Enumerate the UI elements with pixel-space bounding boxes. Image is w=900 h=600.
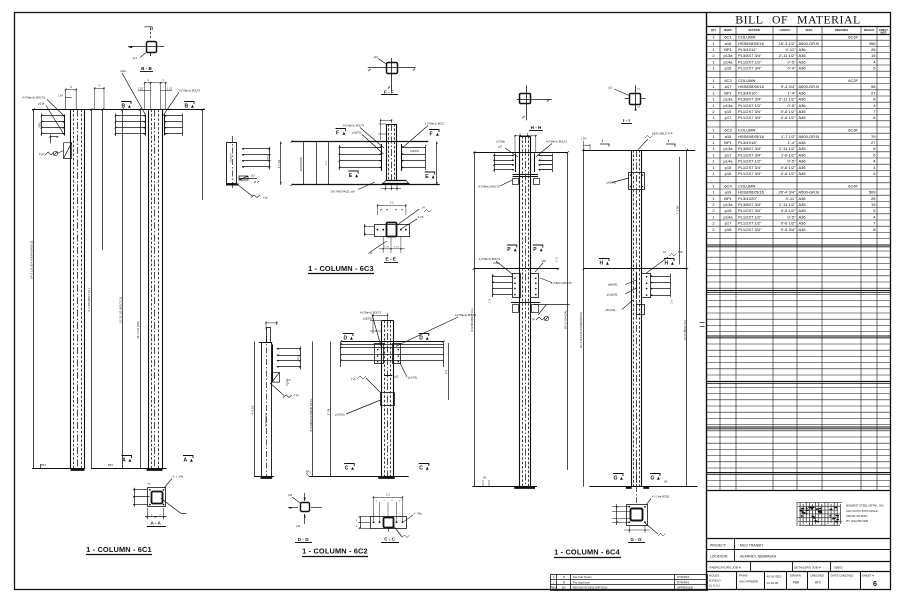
svg-text:6C1: 6C1 <box>724 35 732 40</box>
svg-text:1 1/2: 1 1/2 <box>167 87 173 90</box>
svg-text:QTY: QTY <box>711 28 717 32</box>
svg-text:8-(7/8ø×1) BOLTS: 8-(7/8ø×1) BOLTS <box>479 185 500 189</box>
svg-text:BP1: BP1 <box>306 471 311 474</box>
svg-text:p16: p16 <box>374 56 379 59</box>
svg-text:p13a: p13a <box>724 146 734 151</box>
svg-text:Per Approval: Per Approval <box>573 580 590 584</box>
svg-text:4-(7/8ø×1) BOLTS: 4-(7/8ø×1) BOLTS <box>343 124 364 128</box>
svg-text:HSS8X8: HSS8X8 <box>231 153 233 162</box>
svg-text:a19: a19 <box>725 190 732 195</box>
svg-text:6C3F: 6C3F <box>848 128 858 133</box>
svg-text:MCG TRANSIT: MCG TRANSIT <box>740 544 763 548</box>
svg-text:D - D: D - D <box>298 537 309 542</box>
svg-text:R: R <box>563 575 565 579</box>
svg-text:A36: A36 <box>799 152 807 157</box>
svg-text:PL1/2X7 3/4": PL1/2X7 3/4" <box>738 171 762 176</box>
svg-text:p14a: p14a <box>724 159 734 164</box>
svg-text:p18: p18 <box>725 227 732 232</box>
svg-text:PL1/2X7 3/4": PL1/2X7 3/4" <box>738 152 762 157</box>
svg-text:3@3: 3@3 <box>268 155 270 160</box>
svg-text:WEIGHT: WEIGHT <box>864 28 875 32</box>
svg-text:1'-4": 1'-4" <box>788 90 797 95</box>
svg-text:A36: A36 <box>799 146 807 151</box>
svg-text:26: 26 <box>871 47 876 52</box>
svg-text:PL3/8X7 3/4": PL3/8X7 3/4" <box>738 97 762 102</box>
svg-text:A36: A36 <box>799 221 807 226</box>
svg-text:6: 6 <box>873 581 877 588</box>
svg-text:C: C <box>345 466 349 472</box>
svg-text:1 - COLUMN - 6C3: 1 - COLUMN - 6C3 <box>308 264 374 273</box>
svg-text:E - E: E - E <box>386 257 396 262</box>
svg-text:DETAILERS JOB #: DETAILERS JOB # <box>794 566 821 570</box>
svg-text:15: 15 <box>871 53 876 58</box>
svg-text:A36: A36 <box>799 109 807 114</box>
svg-text:0'-6 3/4": 0'-6 3/4" <box>781 227 796 232</box>
svg-text:LENGTH: LENGTH <box>780 28 791 32</box>
svg-text:4-1 1/4ø RODS: 4-1 1/4ø RODS <box>652 496 670 499</box>
svg-text:79: 79 <box>871 134 876 139</box>
svg-text:p13a: p13a <box>724 53 734 58</box>
svg-text:DATE CHECKED: DATE CHECKED <box>831 574 853 578</box>
svg-text:(OA HSS8X8): (OA HSS8X8) <box>300 157 303 171</box>
svg-text:HOLES:: HOLES: <box>709 574 720 578</box>
svg-text:CHECKED: CHECKED <box>810 574 824 578</box>
svg-text:PBA: PBA <box>793 581 800 585</box>
svg-text:1'-7 1/2": 1'-7 1/2" <box>781 134 796 139</box>
svg-text:0'-6 1/2": 0'-6 1/2" <box>781 115 796 120</box>
svg-text:p17(NS): p17(NS) <box>335 413 345 417</box>
svg-text:16'-3 1/2": 16'-3 1/2" <box>779 41 796 46</box>
svg-text:ATC: ATC <box>815 581 822 585</box>
svg-text:00903: 00903 <box>834 566 843 570</box>
svg-text:1 - COLUMN - 6C1: 1 - COLUMN - 6C1 <box>86 545 152 554</box>
svg-text:p15: p15 <box>725 66 732 71</box>
svg-text:A36: A36 <box>799 171 807 176</box>
svg-text:B: B <box>185 104 189 110</box>
svg-text:1'-0: 1'-0 <box>671 299 674 304</box>
svg-text:FABRICATORS JOB #: FABRICATORS JOB # <box>710 566 741 570</box>
svg-text:HSS8X8X5/16: HSS8X8X5/16 <box>738 84 765 89</box>
svg-text:A500-GR.B: A500-GR.B <box>799 190 820 195</box>
svg-text:COLUMN: COLUMN <box>738 183 755 188</box>
svg-text:4-7/8: 4-7/8 <box>418 216 424 219</box>
svg-text:MARK: MARK <box>724 28 732 32</box>
svg-text:p14a: p14a <box>724 103 734 108</box>
svg-text:2'-11 1/2": 2'-11 1/2" <box>779 97 796 102</box>
svg-text:PL1/2X7 1/2": PL1/2X7 1/2" <box>738 214 762 219</box>
svg-text:p14: p14 <box>296 525 301 528</box>
svg-text:p17: p17 <box>498 146 503 149</box>
svg-text:26: 26 <box>871 196 876 201</box>
svg-text:1 - COLUMN - 6C2: 1 - COLUMN - 6C2 <box>302 547 368 556</box>
svg-text:A36: A36 <box>799 115 807 120</box>
svg-text:TYP: TYP <box>351 379 356 382</box>
svg-text:p66(FS): p66(FS) <box>607 181 617 185</box>
svg-text:0'-5": 0'-5" <box>788 214 797 219</box>
svg-text:p15: p15 <box>725 165 732 170</box>
svg-text:a16: a16 <box>725 41 732 46</box>
svg-text:A36: A36 <box>799 47 807 52</box>
svg-text:14'-3 1/2 (OA): 14'-3 1/2 (OA) <box>136 321 140 339</box>
svg-text:A500-GR.B: A500-GR.B <box>799 84 820 89</box>
svg-text:PL1/2X7 1/2": PL1/2X7 1/2" <box>738 103 762 108</box>
svg-text:R: R <box>563 580 565 584</box>
svg-text:B: B <box>122 104 126 110</box>
svg-text:PAINT:: PAINT: <box>739 574 748 578</box>
svg-text:p13a: p13a <box>120 69 126 73</box>
svg-text:0'-5": 0'-5" <box>788 159 797 164</box>
svg-text:PL3/4X16": PL3/4X16" <box>738 140 758 145</box>
svg-text:BP1: BP1 <box>724 196 732 201</box>
svg-text:A36: A36 <box>799 53 807 58</box>
svg-text:Per Fab Notes: Per Fab Notes <box>573 575 592 579</box>
svg-text:BP1: BP1 <box>41 463 46 467</box>
svg-text:BILL OF MATERIAL: BILL OF MATERIAL <box>735 12 860 26</box>
svg-text:PL1/2X7 3/4": PL1/2X7 3/4" <box>738 208 762 213</box>
svg-text:4-(7/8ø×1) BOLTS: 4-(7/8ø×1) BOLTS <box>479 257 500 261</box>
svg-text:p14a: p14a <box>724 214 734 219</box>
svg-text:19'-11 7/8 (OA): 19'-11 7/8 (OA) <box>564 311 568 330</box>
svg-text:HSS8X8X5/16: HSS8X8X5/16 <box>738 190 765 195</box>
svg-text:SPEC: SPEC <box>805 28 812 32</box>
svg-text:PL1/2X7 3/4": PL1/2X7 3/4" <box>738 165 762 170</box>
svg-text:H - H: H - H <box>531 125 542 130</box>
svg-text:BP1: BP1 <box>724 47 732 52</box>
svg-text:DTR/RF2: DTR/RF2 <box>677 575 690 579</box>
svg-text:PL3/4X20": PL3/4X20" <box>738 196 758 201</box>
svg-text:27: 27 <box>871 90 876 95</box>
svg-text:p13(FS): p13(FS) <box>352 131 362 135</box>
svg-text:I - I: I - I <box>623 118 630 123</box>
svg-text:6C2: 6C2 <box>724 78 732 83</box>
svg-text:1'-2: 1'-2 <box>386 494 391 497</box>
svg-text:7'-1 1/4: 7'-1 1/4 <box>676 205 679 214</box>
svg-text:4-(7/8ø×1) BOLTS: 4-(7/8ø×1) BOLTS <box>22 96 45 100</box>
svg-text:A36: A36 <box>799 97 807 102</box>
svg-text:PL1/2X7 3/4": PL1/2X7 3/4" <box>738 109 762 114</box>
svg-text:6C4: 6C4 <box>724 183 732 188</box>
svg-text:PL1/2X7 1/2": PL1/2X7 1/2" <box>738 159 762 164</box>
svg-text:A: A <box>184 458 188 464</box>
svg-text:1'-0: 1'-0 <box>489 298 492 303</box>
svg-text:p13a: p13a <box>493 262 499 265</box>
svg-text:C - C: C - C <box>384 537 395 542</box>
svg-text:PL1/2X7 3/4": PL1/2X7 3/4" <box>738 66 762 71</box>
svg-text:F: F <box>430 132 433 138</box>
svg-text:10-18-06: 10-18-06 <box>767 581 779 585</box>
svg-text:AS NOTED: AS NOTED <box>767 575 782 579</box>
svg-text:1'-4": 1'-4" <box>788 140 797 145</box>
svg-text:p69 (NS): p69 (NS) <box>605 309 615 312</box>
svg-text:TYP: TYP <box>530 319 535 322</box>
svg-text:BP1: BP1 <box>724 140 732 145</box>
svg-text:15: 15 <box>871 202 876 207</box>
svg-text:Ø FIELD: Ø FIELD <box>709 579 722 583</box>
svg-text:PL3/8X7 3/4": PL3/8X7 3/4" <box>738 202 762 207</box>
svg-text:A36: A36 <box>799 140 807 145</box>
svg-text:TYP: TYP <box>294 395 299 398</box>
svg-text:1 - COLUMN - 6C4: 1 - COLUMN - 6C4 <box>554 548 620 557</box>
svg-text:0'-11": 0'-11" <box>786 196 796 201</box>
svg-text:A36: A36 <box>799 227 807 232</box>
svg-text:8'-4 5/8(OA HSS8X8) 1/2 PL: 8'-4 5/8(OA HSS8X8) 1/2 PL <box>309 398 313 431</box>
svg-text:p56(NS): p56(NS) <box>608 284 617 287</box>
svg-text:p17: p17 <box>725 221 732 226</box>
svg-text:0'-5": 0'-5" <box>788 103 797 108</box>
svg-text:1'-0 1/2": 1'-0 1/2" <box>781 152 796 157</box>
svg-text:MIDWEST STEEL DETAIL, INC: MIDWEST STEEL DETAIL, INC <box>846 504 884 508</box>
svg-text:1 3/4: 1 3/4 <box>58 95 64 98</box>
svg-text:A36: A36 <box>799 59 807 64</box>
svg-text:SEAL WELD TYP: SEAL WELD TYP <box>652 132 673 136</box>
svg-text:6C3: 6C3 <box>724 128 732 133</box>
svg-text:2'-3: 2'-3 <box>445 369 448 374</box>
svg-text:A36: A36 <box>799 165 807 170</box>
svg-text:3 1/2: 3 1/2 <box>384 247 390 249</box>
svg-text:ON THIS FACE p14: ON THIS FACE p14 <box>331 190 355 194</box>
svg-text:p15: p15 <box>725 208 732 213</box>
svg-text:4'-5 1/2: 4'-5 1/2 <box>251 405 255 414</box>
svg-text:B - B: B - B <box>141 66 152 71</box>
svg-text:LOCATION:: LOCATION: <box>710 555 728 559</box>
svg-text:2'-7/8: 2'-7/8 <box>326 408 330 415</box>
svg-text:HSS8X8X5/16: HSS8X8X5/16 <box>738 134 765 139</box>
svg-text:A36: A36 <box>799 90 807 95</box>
svg-text:0'-11": 0'-11" <box>786 47 796 52</box>
svg-text:A36: A36 <box>799 196 807 201</box>
svg-text:TYP: TYP <box>39 153 45 157</box>
svg-text:p13(FS): p13(FS) <box>363 318 372 321</box>
svg-text:p13(FS): p13(FS) <box>410 150 419 153</box>
svg-text:HSS8X8X5/16: HSS8X8X5/16 <box>738 41 765 46</box>
svg-text:COLUMN: COLUMN <box>738 128 755 133</box>
svg-text:4414 SOUTH 84TH CIRCLE: 4414 SOUTH 84TH CIRCLE <box>846 510 878 513</box>
svg-text:REMARKS: REMARKS <box>835 28 848 32</box>
svg-text:G: G <box>614 476 618 482</box>
svg-text:p17: p17 <box>725 152 732 157</box>
svg-text:6'-1 5/8 (BOLT CL): 6'-1 5/8 (BOLT CL) <box>87 288 91 311</box>
svg-text:0'-6 1/2": 0'-6 1/2" <box>781 109 796 114</box>
svg-text:A36: A36 <box>799 208 807 213</box>
svg-text:3'-11: 3'-11 <box>557 256 559 262</box>
svg-text:A36: A36 <box>799 159 807 164</box>
svg-text:20'-4 3/4": 20'-4 3/4" <box>779 190 796 195</box>
svg-text:1'-2: 1'-2 <box>389 202 394 205</box>
svg-text:SHEET #: SHEET # <box>862 574 874 578</box>
svg-text:p13a(NS): p13a(NS) <box>607 294 618 297</box>
svg-text:DTR/RF2: DTR/RF2 <box>677 580 690 584</box>
svg-text:a18: a18 <box>725 134 732 139</box>
svg-text:D: D <box>419 336 423 342</box>
svg-text:p16: p16 <box>725 171 732 176</box>
svg-text:p17: p17 <box>725 115 732 120</box>
svg-text:p15: p15 <box>725 109 732 114</box>
svg-text:BP1: BP1 <box>724 90 732 95</box>
svg-text:96: 96 <box>871 84 876 89</box>
svg-text:2'-11 1/2": 2'-11 1/2" <box>779 146 796 151</box>
svg-text:PL1/2X7 3/4": PL1/2X7 3/4" <box>738 227 762 232</box>
svg-text:3@3: 3@3 <box>298 355 300 360</box>
svg-text:PL1/2X7 3/4": PL1/2X7 3/4" <box>738 115 762 120</box>
svg-text:PROJECT:: PROJECT: <box>710 544 726 548</box>
svg-text:DRAWN: DRAWN <box>790 574 801 578</box>
svg-text:509: 509 <box>869 190 876 195</box>
svg-text:1-(7/8ø): 1-(7/8ø) <box>496 141 505 144</box>
svg-text:I: I <box>602 139 603 143</box>
svg-text:6C4F: 6C4F <box>848 183 858 188</box>
svg-text:4-(7/8ø×1) BOLTS: 4-(7/8ø×1) BOLTS <box>551 281 572 285</box>
svg-text:WGT: WGT <box>880 31 886 35</box>
svg-text:1'-7 1/2: 1'-7 1/2 <box>277 159 281 168</box>
svg-text:SECTION: SECTION <box>748 28 760 32</box>
svg-text:1-(7/8ø×1) BOLT: 1-(7/8ø×1) BOLT <box>425 122 445 126</box>
svg-text:4-(7/8ø×1) BOLTS: 4-(7/8ø×1) BOLTS <box>179 89 200 93</box>
svg-text:1 3/4: 1 3/4 <box>581 139 587 141</box>
svg-text:9'-9 5/8 (BOLT CL): 9'-9 5/8 (BOLT CL) <box>470 308 474 331</box>
svg-text:A500-GR.B: A500-GR.B <box>799 134 820 139</box>
svg-text:1 1/2: 1 1/2 <box>138 87 144 90</box>
svg-text:0'-6 1/2": 0'-6 1/2" <box>781 208 796 213</box>
svg-text:p13 (FS): p13 (FS) <box>408 376 418 379</box>
svg-text:G: G <box>651 476 655 482</box>
svg-text:REV: REV <box>551 586 557 590</box>
svg-text:4-(7/8ø×1) BOLTS: 4-(7/8ø×1) BOLTS <box>546 140 567 144</box>
svg-text:H: H <box>665 261 669 267</box>
svg-text:4 - 7/8ø: 4 - 7/8ø <box>414 513 423 516</box>
svg-text:13'-10 1/2 (BOLT CL): 13'-10 1/2 (BOLT CL) <box>118 297 122 323</box>
svg-text:F - F: F - F <box>384 90 394 95</box>
svg-text:4-(7/8ø×1) BOLTS: 4-(7/8ø×1) BOLTS <box>360 311 381 315</box>
svg-text:20'-4 3/4 (OA HSS8X8X5/16): 20'-4 3/4 (OA HSS8X8X5/16) <box>579 312 583 348</box>
svg-text:0'-6 1/2": 0'-6 1/2" <box>781 165 796 170</box>
svg-text:p13a: p13a <box>724 202 734 207</box>
svg-text:2'-11 1/2": 2'-11 1/2" <box>779 202 796 207</box>
svg-text:KEARNEY, NEBRASKA: KEARNEY, NEBRASKA <box>740 555 777 559</box>
svg-text:6C2F: 6C2F <box>848 78 858 83</box>
svg-text:3@3: 3@3 <box>38 122 42 128</box>
svg-text:(U.N.O.): (U.N.O.) <box>709 584 720 588</box>
svg-text:p14: p14 <box>133 56 138 60</box>
svg-text:A500-GR.B: A500-GR.B <box>799 41 820 46</box>
svg-text:PL3/4X11": PL3/4X11" <box>738 47 757 52</box>
svg-text:PH: (402) 555-0188: PH: (402) 555-0188 <box>846 520 869 523</box>
svg-text:G - G: G - G <box>630 537 642 542</box>
svg-text:PL3/4X16": PL3/4X16" <box>738 90 758 95</box>
svg-text:F: F <box>336 131 339 137</box>
svg-text:4 - 1 1/4ø: 4 - 1 1/4ø <box>173 476 184 479</box>
svg-text:p17: p17 <box>609 87 614 90</box>
svg-text:p13a: p13a <box>724 97 734 102</box>
svg-text:REVISION DESCRIPTION: REVISION DESCRIPTION <box>573 586 607 590</box>
svg-text:COLUMN: COLUMN <box>738 78 755 83</box>
svg-text:3 1/2: 3 1/2 <box>394 247 400 249</box>
svg-text:COLUMN: COLUMN <box>738 35 755 40</box>
svg-text:UNO PRIMER: UNO PRIMER <box>739 580 759 584</box>
svg-text:PL3/8X7 3/4": PL3/8X7 3/4" <box>738 146 762 151</box>
svg-text:BY: BY <box>562 586 566 590</box>
svg-text:HSS8X8X5/16: HSS8X8X5/16 <box>265 412 267 427</box>
svg-text:0'-6 1/2": 0'-6 1/2" <box>781 171 796 176</box>
svg-text:A36: A36 <box>799 66 807 71</box>
svg-text:C: C <box>419 466 423 472</box>
svg-text:0'-5": 0'-5" <box>788 59 797 64</box>
svg-text:27: 27 <box>871 140 876 145</box>
svg-text:2'-11 1/2": 2'-11 1/2" <box>779 53 796 58</box>
svg-text:OMAHA, NE 68127: OMAHA, NE 68127 <box>846 515 868 518</box>
svg-text:PL1/2X7 1/2": PL1/2X7 1/2" <box>738 59 762 64</box>
svg-text:p14: p14 <box>368 252 373 255</box>
svg-text:PL3/8X7 3/4": PL3/8X7 3/4" <box>738 53 762 58</box>
svg-text:p13a: p13a <box>38 102 45 106</box>
svg-text:p14a: p14a <box>724 59 734 64</box>
svg-text:APPROVED: APPROVED <box>677 586 693 590</box>
svg-text:A36: A36 <box>799 202 807 207</box>
svg-text:D: D <box>344 336 348 342</box>
svg-text:0'-4": 0'-4" <box>788 66 797 71</box>
svg-text:16'-6 (BOLT CL): 16'-6 (BOLT CL) <box>683 320 687 340</box>
svg-text:6C1F: 6C1F <box>848 35 858 40</box>
svg-text:BP1: BP1 <box>108 463 113 467</box>
svg-text:A - A: A - A <box>151 521 162 526</box>
svg-text:PL1/2X7 1/2": PL1/2X7 1/2" <box>738 221 762 226</box>
svg-text:H: H <box>600 261 604 267</box>
svg-text:p66: p66 <box>542 260 547 263</box>
svg-text:a17: a17 <box>725 84 732 89</box>
svg-text:TYP: TYP <box>263 197 268 200</box>
svg-text:A: A <box>122 458 126 464</box>
svg-text:9'-3 3/4": 9'-3 3/4" <box>781 84 796 89</box>
svg-text:TYP: TYP <box>678 251 683 254</box>
svg-text:I: I <box>668 139 669 143</box>
svg-text:266: 266 <box>869 41 876 46</box>
svg-text:A36: A36 <box>799 214 807 219</box>
svg-text:14'-3 1/2 (OA HSS8X8X5/16): 14'-3 1/2 (OA HSS8X8X5/16) <box>30 241 34 280</box>
svg-text:A36: A36 <box>799 103 807 108</box>
svg-text:p15: p15 <box>288 494 293 497</box>
svg-text:0'-6 1/2": 0'-6 1/2" <box>781 221 796 226</box>
